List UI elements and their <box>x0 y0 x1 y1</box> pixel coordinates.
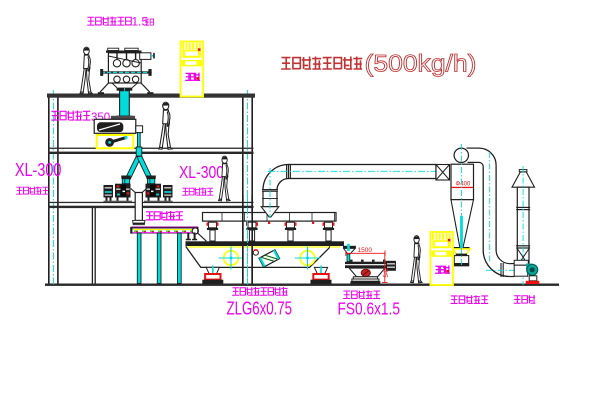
svg-text:Φ400: Φ400 <box>456 182 471 188</box>
svg-text:XL-300: XL-300 <box>15 160 62 180</box>
svg-text:541: 541 <box>384 267 390 278</box>
svg-text:XL-300: XL-300 <box>179 162 224 182</box>
svg-text:ZLG6x0.75: ZLG6x0.75 <box>227 299 293 319</box>
svg-text:FS0.6x1.5: FS0.6x1.5 <box>338 299 401 319</box>
svg-text:1500: 1500 <box>358 247 373 254</box>
svg-text:(500kg/h): (500kg/h) <box>365 51 477 78</box>
svg-text:1.5: 1.5 <box>132 15 149 29</box>
